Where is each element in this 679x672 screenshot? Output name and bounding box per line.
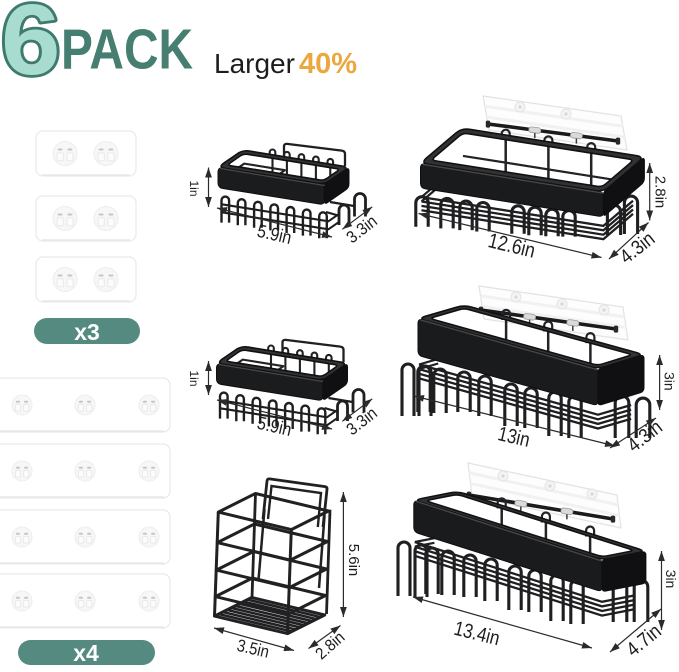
svg-text:3in: 3in (663, 570, 679, 589)
svg-text:5.6in: 5.6in (345, 544, 362, 577)
svg-text:1in: 1in (187, 180, 201, 196)
svg-text:2.8in: 2.8in (652, 176, 669, 209)
svg-text:3in: 3in (662, 372, 678, 391)
svg-text:40%: 40% (299, 48, 357, 80)
svg-text:Larger: Larger (214, 48, 295, 79)
svg-text:PACK: PACK (61, 18, 193, 82)
svg-text:6: 6 (1, 0, 61, 95)
svg-text:1in: 1in (187, 370, 201, 386)
svg-text:x3: x3 (74, 319, 100, 345)
svg-text:x4: x4 (73, 640, 99, 666)
